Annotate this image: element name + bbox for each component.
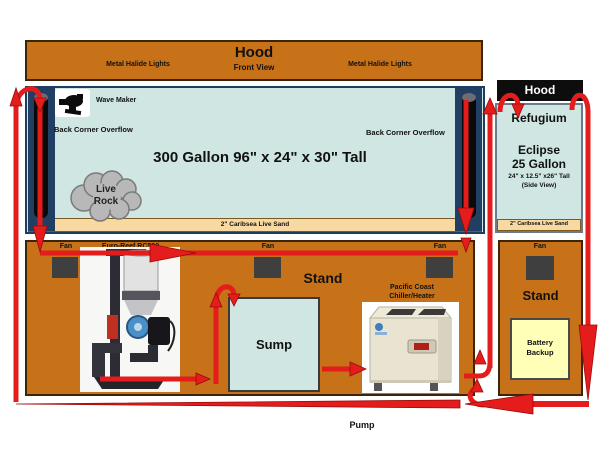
right-fan-box xyxy=(526,256,554,280)
fan2-box xyxy=(254,257,281,278)
overflow-right-label: Back Corner Overflow xyxy=(366,128,445,137)
main-stand-label: Stand xyxy=(283,271,363,286)
overflow-box-left xyxy=(28,88,55,231)
sump-label: Sump xyxy=(228,337,320,352)
arrowhead-pump-line-left-big xyxy=(465,394,533,414)
refugium-title: Refugium xyxy=(495,111,583,125)
arrowhead-left-riser-up xyxy=(10,88,22,106)
overflow-left-label: Back Corner Overflow xyxy=(54,125,133,134)
battery-backup-line2: Backup xyxy=(510,348,570,357)
skimmer-image xyxy=(80,247,180,392)
pump-label: Pump xyxy=(330,420,394,430)
main-hood-subtitle: Front View xyxy=(194,63,314,72)
refugium-sand-label: 2" Caribsea Live Sand xyxy=(497,221,581,228)
wave-maker-label: Wave Maker xyxy=(96,97,136,105)
fan1-label: Fan xyxy=(48,243,84,251)
aquarium-plumbing-diagram: Hood Front View Metal Halide Lights Meta… xyxy=(0,0,600,450)
fan3-label: Fan xyxy=(422,243,458,251)
refugium-view-note: (Side View) xyxy=(495,182,583,190)
metal-halide-left-label: Metal Halide Lights xyxy=(78,61,198,69)
wave-maker-icon xyxy=(55,89,90,117)
chiller-label-line1: Pacific Coast xyxy=(362,284,462,292)
arrowhead-chiller-elbow-up xyxy=(474,350,486,364)
wave-maker-box xyxy=(55,89,90,117)
right-fan-label: Fan xyxy=(522,243,558,251)
skimmer-photo xyxy=(80,247,180,392)
battery-backup-line1: Battery xyxy=(510,338,570,347)
fan3-box xyxy=(426,257,453,278)
fan2-label: Fan xyxy=(250,243,286,251)
refugium-dimensions: 24" x 12.5" x26" Tall xyxy=(495,173,583,181)
live-rock-label-line1: Live xyxy=(80,184,132,195)
live-rock-label-line2: Rock xyxy=(80,196,132,207)
fan1-box xyxy=(52,257,78,278)
chiller-label-line2: Chiller/Heater xyxy=(362,293,462,301)
chiller-photo xyxy=(362,302,459,393)
chiller-image xyxy=(362,302,459,393)
metal-halide-right-label: Metal Halide Lights xyxy=(320,61,440,69)
refugium-capacity: 25 Gallon xyxy=(495,157,583,171)
main-tank-label: 300 Gallon 96" x 24" x 30" Tall xyxy=(115,149,405,166)
main-hood-title: Hood xyxy=(194,45,314,61)
refugium-hood-box: Hood xyxy=(497,80,583,101)
overflow-box-right xyxy=(455,88,482,231)
refugium-hood-label: Hood xyxy=(525,83,556,97)
arrowhead-pump-line-taper xyxy=(16,400,460,408)
right-stand-label: Stand xyxy=(498,288,583,303)
refugium-model: Eclipse xyxy=(495,143,583,157)
